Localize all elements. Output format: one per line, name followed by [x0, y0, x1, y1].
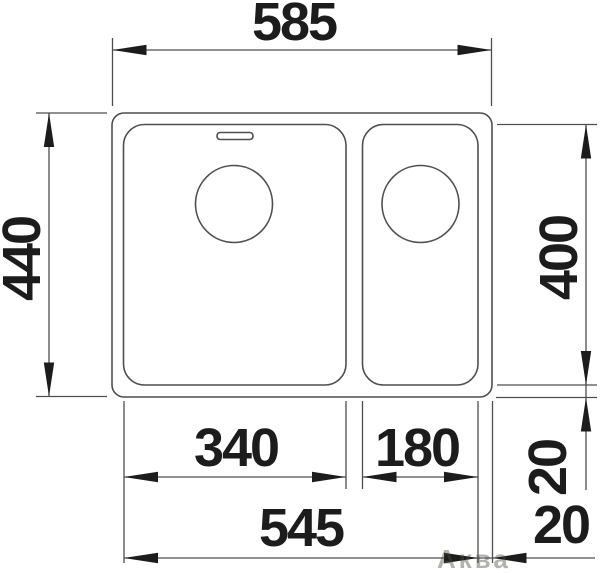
side-bowl-drain-circle — [382, 166, 459, 243]
arrowhead-up — [44, 113, 54, 147]
dimension-label-400: 400 — [529, 216, 589, 300]
arrowhead-up — [581, 125, 591, 159]
arrowhead-right — [312, 472, 346, 482]
dimension-bowls-span: 545 20 — [124, 495, 595, 563]
arrowhead-left — [113, 45, 147, 55]
main-bowl-drain-circle — [196, 166, 273, 243]
dimension-label-440: 440 — [0, 217, 52, 301]
overflow-slot — [217, 133, 253, 140]
drawing-canvas: 585 440 400 20 340 180 — [0, 0, 600, 573]
dimension-label-340: 340 — [194, 418, 278, 478]
watermark-text: Аква — [437, 544, 511, 573]
dimension-label-180: 180 — [375, 418, 459, 478]
dimension-label-585: 585 — [252, 0, 337, 52]
main-bowl — [124, 125, 347, 386]
dimension-overall-depth: 440 — [0, 113, 107, 397]
dimension-bowl-depth: 400 20 — [496, 125, 597, 497]
dimension-label-20-vertical: 20 — [518, 440, 578, 496]
side-bowl — [363, 125, 479, 386]
dimension-label-20-horizontal: 20 — [533, 495, 589, 555]
arrowhead-down — [44, 363, 54, 397]
sink-dimension-drawing: 585 440 400 20 340 180 — [0, 0, 600, 573]
arrowhead-up-outside — [581, 398, 591, 432]
arrowhead-left — [124, 553, 158, 563]
arrowhead-down — [581, 351, 591, 385]
dimension-label-545: 545 — [259, 498, 344, 558]
arrowhead-left — [124, 472, 158, 482]
sink-outer-rim — [112, 113, 492, 397]
dimension-overall-width: 585 — [113, 0, 492, 106]
arrowhead-right — [458, 45, 492, 55]
sink-outline-group — [112, 113, 492, 397]
